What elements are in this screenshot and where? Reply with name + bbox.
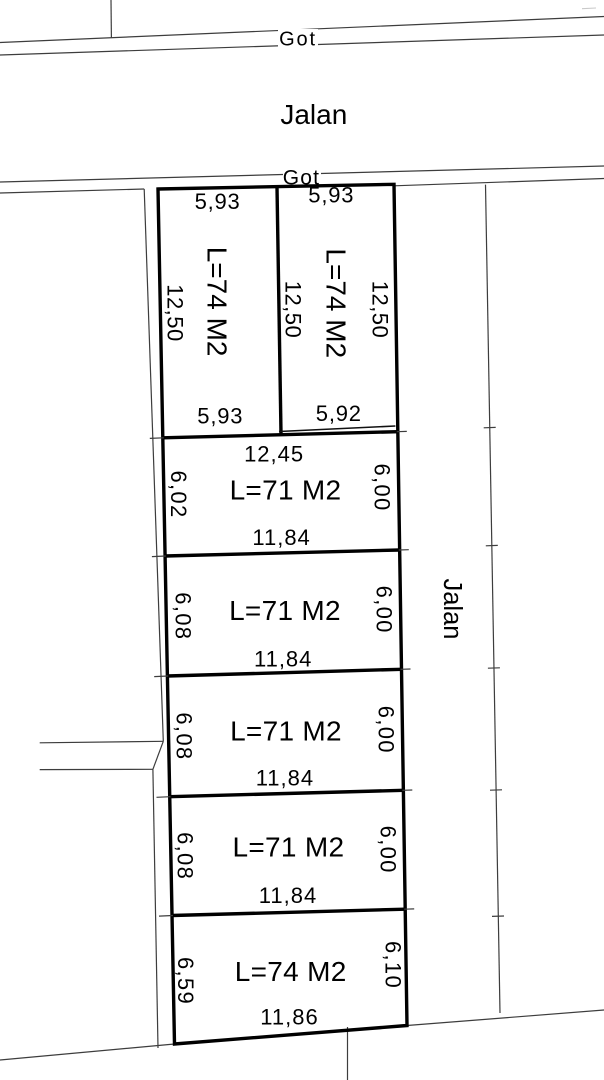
svg-text:12,50: 12,50 <box>280 281 305 339</box>
svg-text:6,08: 6,08 <box>172 712 197 760</box>
svg-text:L=71 M2: L=71 M2 <box>229 595 341 626</box>
svg-text:5,92: 5,92 <box>316 401 362 426</box>
svg-text:11,86: 11,86 <box>260 1005 318 1030</box>
svg-text:L=71 M2: L=71 M2 <box>232 832 344 863</box>
svg-text:5,93: 5,93 <box>197 404 243 429</box>
svg-text:11,84: 11,84 <box>254 647 312 672</box>
svg-text:6,08: 6,08 <box>172 832 197 880</box>
svg-text:6,00: 6,00 <box>372 586 397 634</box>
svg-text:5,93: 5,93 <box>195 189 241 214</box>
svg-text:6,08: 6,08 <box>171 592 196 640</box>
svg-text:6,10: 6,10 <box>381 941 406 989</box>
svg-text:5,93: 5,93 <box>308 183 354 208</box>
svg-text:6,59: 6,59 <box>173 957 198 1005</box>
svg-text:12,50: 12,50 <box>162 284 187 342</box>
svg-text:L=71 M2: L=71 M2 <box>230 475 342 506</box>
svg-text:6,00: 6,00 <box>374 706 399 754</box>
svg-text:11,84: 11,84 <box>256 766 314 791</box>
svg-text:L=71 M2: L=71 M2 <box>230 716 342 747</box>
svg-text:11,84: 11,84 <box>252 525 310 550</box>
svg-text:L=74 M2: L=74 M2 <box>202 247 233 357</box>
svg-text:Jalan: Jalan <box>280 99 347 130</box>
svg-text:6,02: 6,02 <box>166 470 191 518</box>
svg-text:12,50: 12,50 <box>368 281 393 339</box>
svg-text:6,00: 6,00 <box>370 463 395 511</box>
svg-text:12,45: 12,45 <box>244 442 304 467</box>
svg-text:Jalan: Jalan <box>438 579 466 640</box>
svg-text:Got: Got <box>279 29 317 51</box>
svg-text:L=74 M2: L=74 M2 <box>321 248 352 358</box>
svg-text:6,00: 6,00 <box>376 826 401 874</box>
svg-text:L=74 M2: L=74 M2 <box>235 956 347 987</box>
svg-text:11,84: 11,84 <box>259 883 317 908</box>
